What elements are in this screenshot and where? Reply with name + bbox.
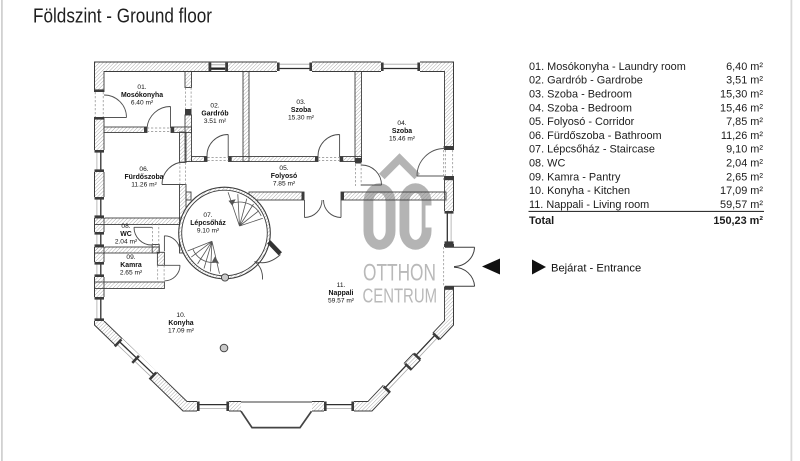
svg-text:09.: 09. xyxy=(126,254,135,261)
svg-text:04.: 04. xyxy=(397,120,406,127)
svg-text:Bejárat - Entrance: Bejárat - Entrance xyxy=(551,263,641,275)
svg-text:Földszint - Ground floor: Földszint - Ground floor xyxy=(33,4,212,27)
svg-text:11.: 11. xyxy=(337,282,346,289)
svg-text:9.10 m²: 9.10 m² xyxy=(197,228,220,235)
svg-text:15.30 m²: 15.30 m² xyxy=(288,115,315,122)
svg-text:10.: 10. xyxy=(176,312,185,319)
svg-text:11. Nappali - Living room: 11. Nappali - Living room xyxy=(529,199,649,211)
svg-text:11,26 m²: 11,26 m² xyxy=(721,130,764,142)
svg-text:09. Kamra - Pantry: 09. Kamra - Pantry xyxy=(529,171,621,183)
svg-text:59,57 m²: 59,57 m² xyxy=(720,199,763,211)
svg-text:Szoba: Szoba xyxy=(392,128,412,135)
svg-text:Mosókonyha: Mosókonyha xyxy=(121,92,163,99)
svg-text:3,51 m²: 3,51 m² xyxy=(726,75,763,87)
svg-text:7,85 m²: 7,85 m² xyxy=(726,116,763,128)
svg-text:Fürdőszoba: Fürdőszoba xyxy=(124,174,163,181)
svg-text:Konyha: Konyha xyxy=(168,320,193,327)
svg-text:CENTRUM: CENTRUM xyxy=(363,285,438,307)
svg-text:01.: 01. xyxy=(137,84,146,91)
svg-text:01. Mosókonyha - Laundry room: 01. Mosókonyha - Laundry room xyxy=(529,61,686,73)
svg-text:17,09 m²: 17,09 m² xyxy=(720,185,763,197)
svg-text:2,04 m²: 2,04 m² xyxy=(726,158,763,170)
svg-text:06. Fürdőszoba - Bathroom: 06. Fürdőszoba - Bathroom xyxy=(529,130,662,142)
svg-text:07.: 07. xyxy=(203,212,212,219)
svg-text:Szoba: Szoba xyxy=(291,107,311,114)
svg-text:08.: 08. xyxy=(121,223,130,230)
svg-text:05. Folyosó - Corridor: 05. Folyosó - Corridor xyxy=(529,116,635,128)
svg-text:3.51 m²: 3.51 m² xyxy=(204,118,227,125)
svg-text:WC: WC xyxy=(120,231,132,238)
svg-text:06.: 06. xyxy=(139,166,148,173)
svg-text:Kamra: Kamra xyxy=(120,262,142,269)
svg-text:03.: 03. xyxy=(296,99,305,106)
svg-text:Nappali: Nappali xyxy=(329,290,354,297)
svg-text:6.40 m²: 6.40 m² xyxy=(131,100,154,107)
svg-text:7.85 m²: 7.85 m² xyxy=(273,181,296,188)
svg-text:59.57 m²: 59.57 m² xyxy=(328,298,355,305)
svg-text:17.09 m²: 17.09 m² xyxy=(168,328,195,335)
svg-text:2.04 m²: 2.04 m² xyxy=(115,239,138,246)
svg-text:Lépcsőház: Lépcsőház xyxy=(190,220,226,227)
svg-text:04. Szoba - Bedroom: 04. Szoba - Bedroom xyxy=(529,102,632,114)
svg-text:07. Lépcsőház - Staircase: 07. Lépcsőház - Staircase xyxy=(529,144,655,156)
svg-text:10. Konyha - Kitchen: 10. Konyha - Kitchen xyxy=(529,185,630,197)
svg-text:15,30 m²: 15,30 m² xyxy=(720,89,763,101)
svg-text:150,23 m²: 150,23 m² xyxy=(713,215,763,227)
svg-text:02. Gardrób - Gardrobe: 02. Gardrób - Gardrobe xyxy=(529,75,643,87)
svg-text:02.: 02. xyxy=(210,103,219,110)
svg-text:05.: 05. xyxy=(279,165,288,172)
svg-text:15,46 m²: 15,46 m² xyxy=(720,102,763,114)
svg-text:11.26 m²: 11.26 m² xyxy=(131,182,157,189)
svg-text:Folyosó: Folyosó xyxy=(271,173,297,180)
svg-text:03. Szoba - Bedroom: 03. Szoba - Bedroom xyxy=(529,89,632,101)
svg-text:Total: Total xyxy=(529,215,554,227)
svg-text:15.46 m²: 15.46 m² xyxy=(389,136,416,143)
svg-text:08. WC: 08. WC xyxy=(529,158,565,170)
svg-text:Gardrób: Gardrób xyxy=(201,110,228,117)
svg-text:2.65 m²: 2.65 m² xyxy=(120,270,143,277)
svg-text:2,65 m²: 2,65 m² xyxy=(726,171,763,183)
svg-text:9,10 m²: 9,10 m² xyxy=(726,144,763,156)
svg-text:6,40 m²: 6,40 m² xyxy=(726,61,763,73)
svg-text:OTTHON: OTTHON xyxy=(363,260,436,287)
